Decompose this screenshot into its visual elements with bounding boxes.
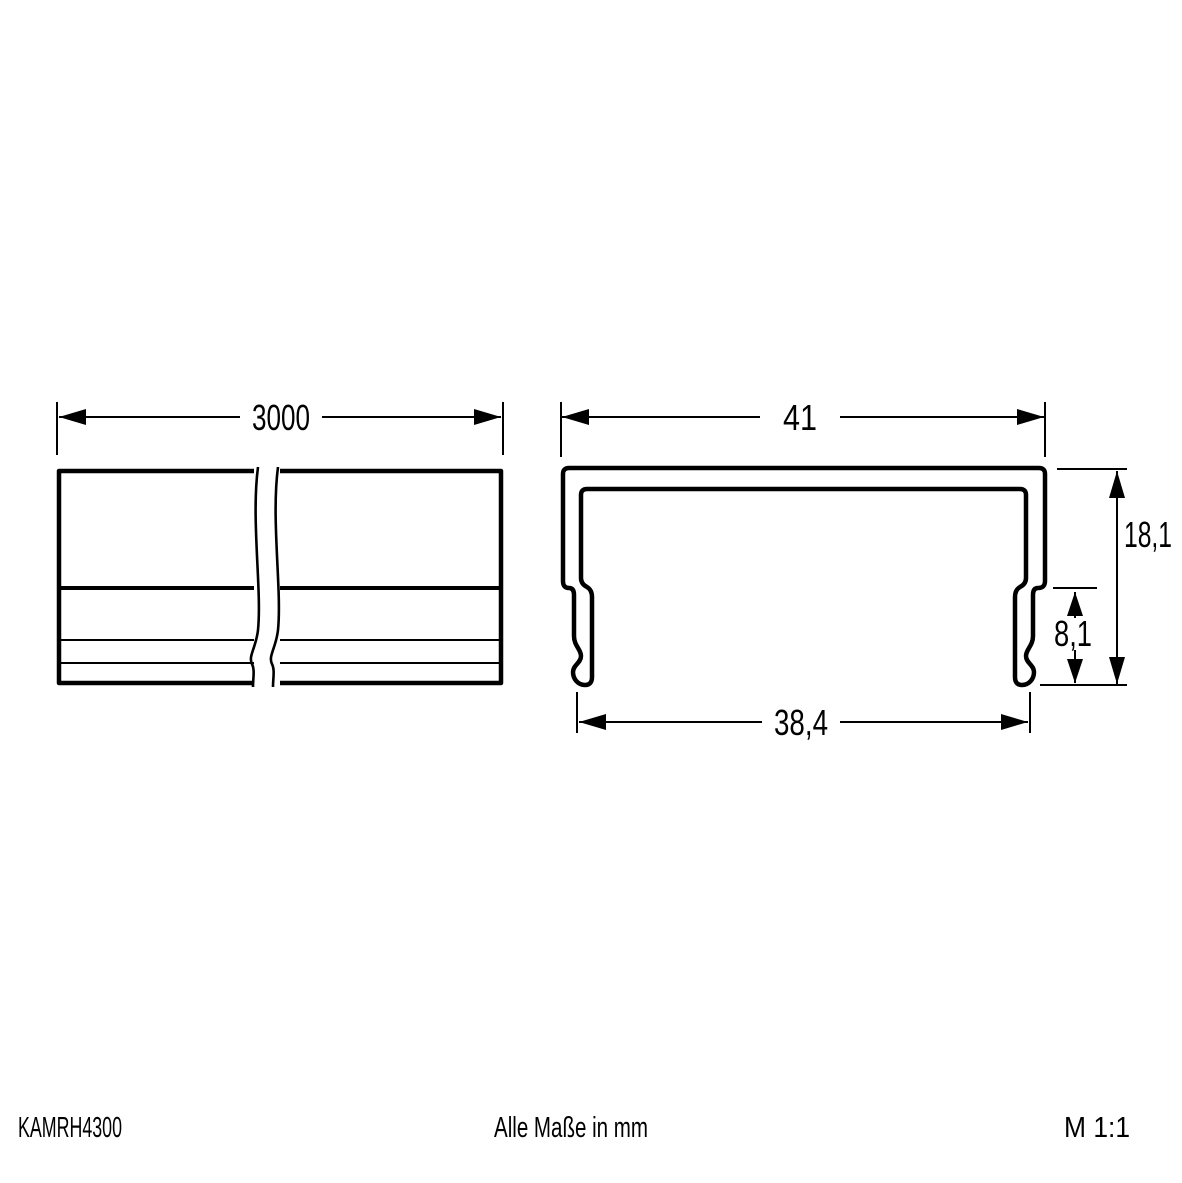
dim-38-4: 38,4 xyxy=(577,692,1030,743)
side-view-outline-left xyxy=(59,471,254,683)
dim-8-1-arrow-bottom-icon xyxy=(1067,659,1083,683)
dim-41-label: 41 xyxy=(783,397,817,438)
dim-8-1-label: 8,1 xyxy=(1054,613,1092,654)
cross-section-outline xyxy=(563,468,1045,685)
side-view xyxy=(59,467,501,687)
dim-38-4-arrow-right-icon xyxy=(1001,714,1028,730)
footer-scale: M 1:1 xyxy=(1064,1112,1130,1144)
dim-38-4-arrow-left-icon xyxy=(579,714,606,730)
cross-section xyxy=(563,468,1045,685)
dim-41-arrow-right-icon xyxy=(1017,409,1044,425)
dim-3000-arrow-left-icon xyxy=(59,409,86,425)
dim-3000: 3000 xyxy=(57,397,503,455)
dim-8-1: 8,1 xyxy=(1053,588,1097,683)
dim-38-4-label: 38,4 xyxy=(774,702,828,743)
footer-units-note: Alle Maße in mm xyxy=(494,1112,648,1144)
technical-drawing: 3000 41 18,1 8,1 38 xyxy=(0,0,1182,1183)
drawing-page: 3000 41 18,1 8,1 38 xyxy=(0,0,1182,1183)
footer-article-code: KAMRH4300 xyxy=(18,1112,122,1144)
dim-41-arrow-left-icon xyxy=(562,409,589,425)
break-line-right xyxy=(271,467,279,687)
side-view-outline-right xyxy=(280,471,501,683)
dim-3000-label: 3000 xyxy=(252,397,310,438)
dim-3000-arrow-right-icon xyxy=(474,409,501,425)
footer: KAMRH4300 Alle Maße in mm M 1:1 xyxy=(18,1112,1130,1144)
dim-18-1-arrow-top-icon xyxy=(1109,471,1125,498)
break-line-left xyxy=(251,467,259,687)
dim-41: 41 xyxy=(561,397,1045,457)
dim-18-1-label: 18,1 xyxy=(1124,514,1172,555)
dim-18-1-arrow-bottom-icon xyxy=(1109,657,1125,684)
